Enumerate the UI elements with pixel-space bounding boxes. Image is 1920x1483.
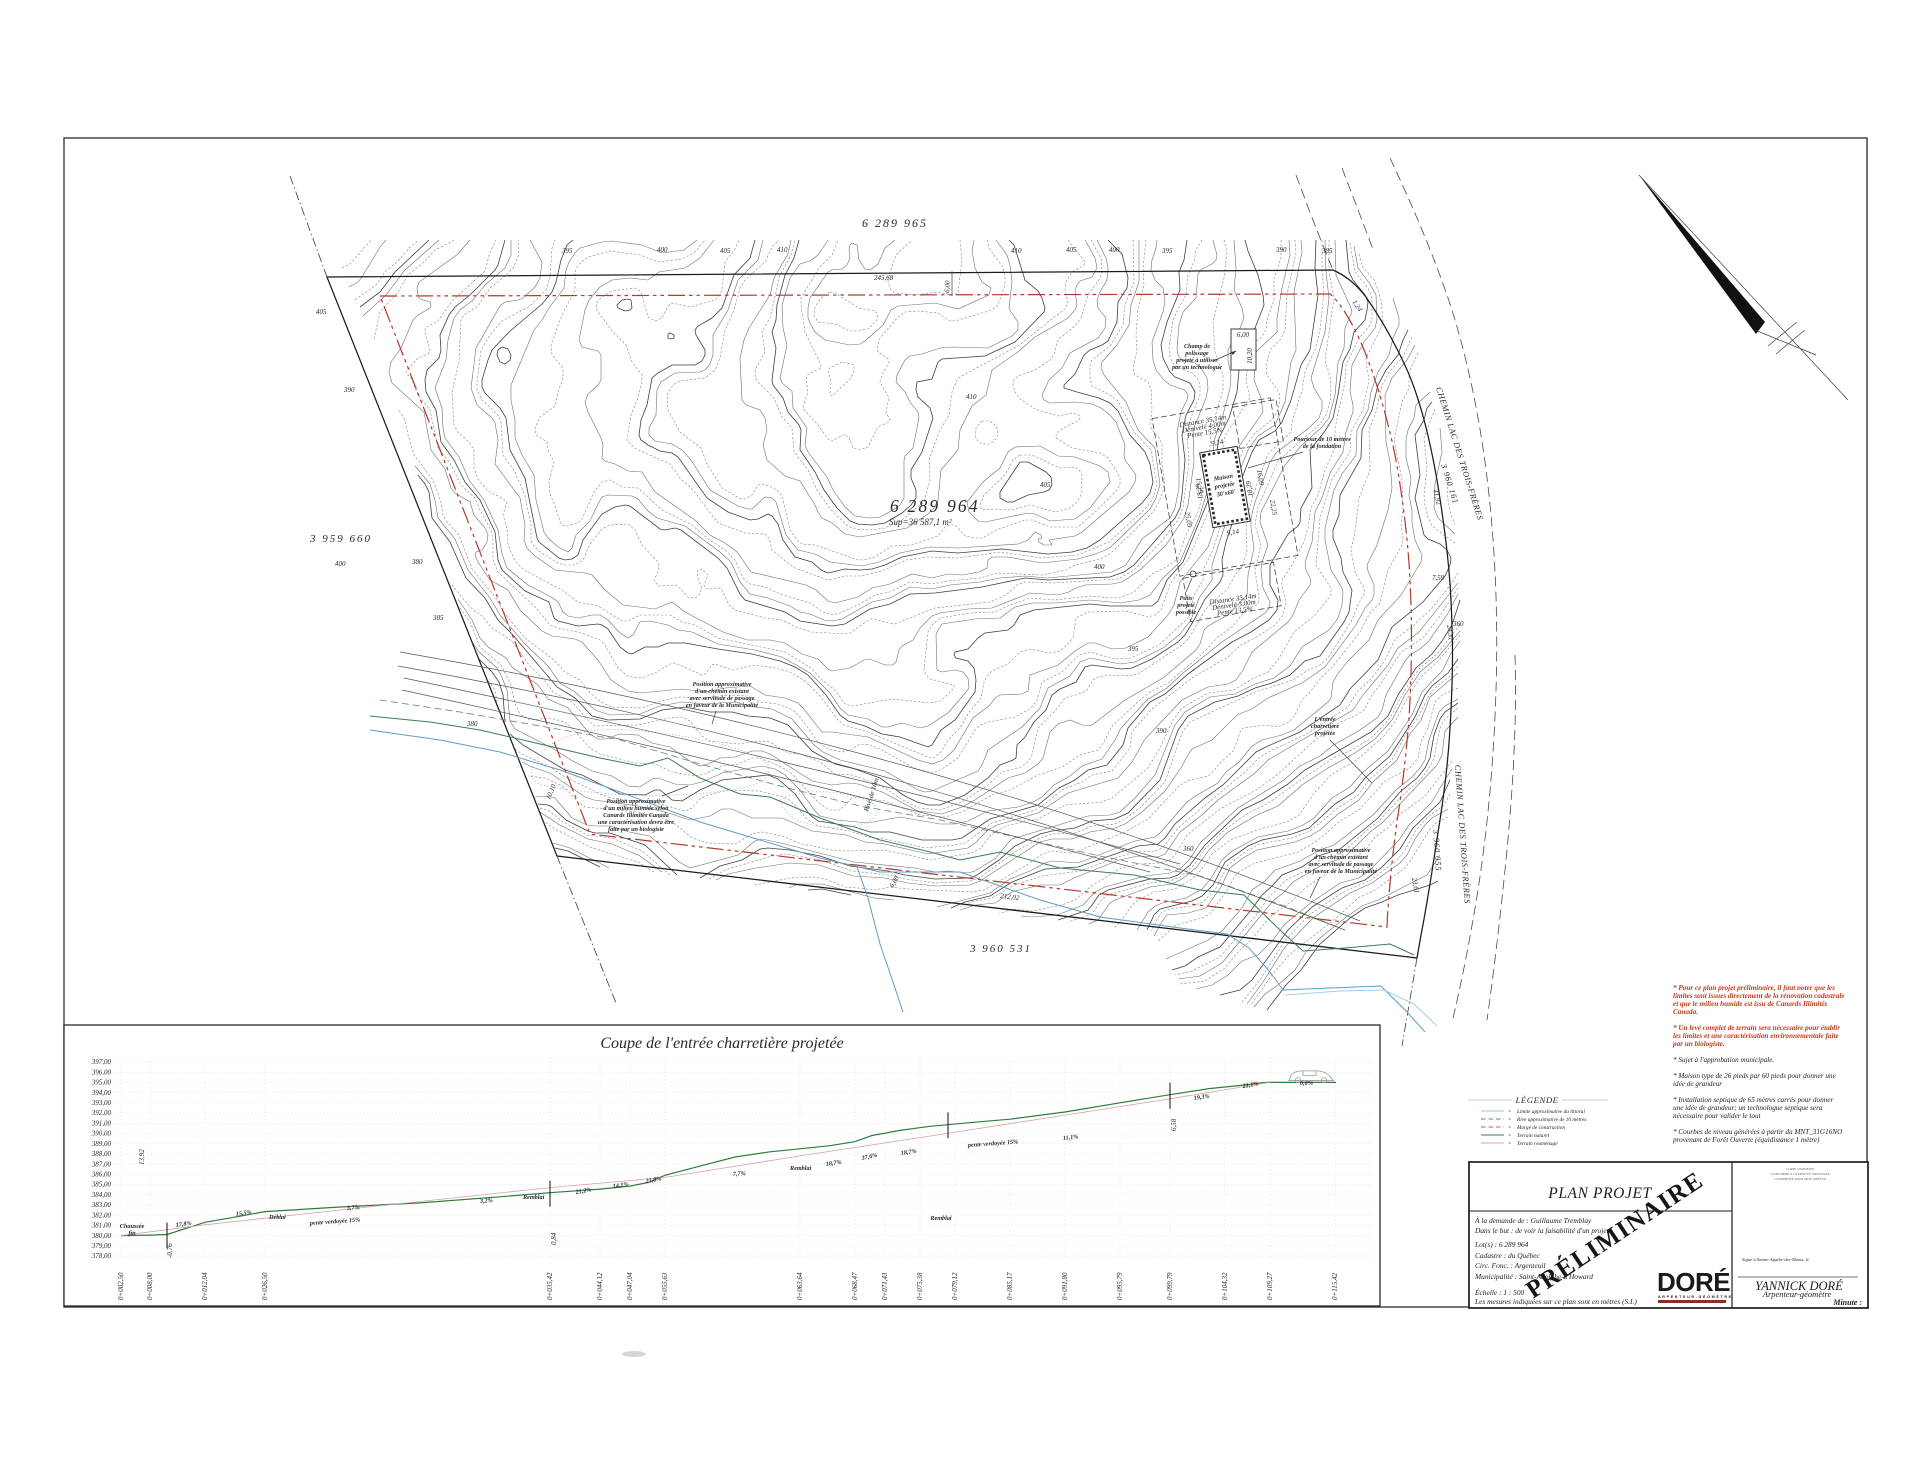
svg-text:Cadastre : du Québec: Cadastre : du Québec bbox=[1475, 1251, 1541, 1260]
svg-text:0+115,42: 0+115,42 bbox=[1331, 1273, 1339, 1300]
svg-text:0+044,12: 0+044,12 bbox=[596, 1272, 604, 1300]
svg-text:6 289 964: 6 289 964 bbox=[890, 496, 980, 516]
svg-text:405: 405 bbox=[1066, 246, 1077, 254]
svg-text:Échelle : 1 : 500: Échelle : 1 : 500 bbox=[1474, 1287, 1525, 1297]
svg-text:Position approximative: Position approximative bbox=[693, 681, 752, 688]
svg-text:378,00: 378,00 bbox=[91, 1252, 112, 1260]
svg-text:idée de grandeur: idée de grandeur bbox=[1673, 1080, 1722, 1088]
svg-text:400: 400 bbox=[335, 560, 346, 568]
svg-text:Les mesures indiquées sur ce p: Les mesures indiquées sur ce plan sont e… bbox=[1474, 1297, 1637, 1306]
svg-text:380,00: 380,00 bbox=[91, 1232, 112, 1240]
svg-text:Circ. Fonc. : Argenteuil: Circ. Fonc. : Argenteuil bbox=[1475, 1261, 1546, 1270]
svg-text:LÉGENDE: LÉGENDE bbox=[1514, 1095, 1558, 1105]
svg-text:380: 380 bbox=[466, 720, 478, 728]
svg-text:Sup=36 587,1 m²: Sup=36 587,1 m² bbox=[889, 517, 952, 527]
svg-text:Canards Illimités Canada: Canards Illimités Canada bbox=[603, 812, 669, 819]
svg-text:0+095,79: 0+095,79 bbox=[1116, 1272, 1124, 1300]
svg-text:387,00: 387,00 bbox=[91, 1160, 112, 1168]
svg-text:245,68: 245,68 bbox=[874, 274, 894, 282]
svg-text:391,00: 391,00 bbox=[91, 1120, 112, 1128]
svg-text:d'un milieu humide selon: d'un milieu humide selon bbox=[603, 805, 669, 812]
svg-text:0+079,12: 0+079,12 bbox=[951, 1272, 959, 1300]
svg-text:0+104,32: 0+104,32 bbox=[1221, 1272, 1229, 1300]
svg-text:* Un levé complet de terrain s: * Un levé complet de terrain sera nécess… bbox=[1673, 1024, 1840, 1032]
svg-text:395: 395 bbox=[1161, 247, 1173, 255]
svg-text:400: 400 bbox=[657, 246, 668, 254]
svg-text:provenant de Forêt Ouverte (éq: provenant de Forêt Ouverte (équidistance… bbox=[1672, 1136, 1820, 1144]
svg-text:Champ de: Champ de bbox=[1184, 343, 1210, 350]
svg-text:faite par un biologiste: faite par un biologiste bbox=[608, 826, 664, 833]
svg-text:Position approximative: Position approximative bbox=[607, 798, 666, 805]
svg-text:382,00: 382,00 bbox=[91, 1211, 112, 1219]
svg-text:=: = bbox=[1508, 1141, 1512, 1147]
svg-text:et que le milieu humide est is: et que le milieu humide est issu de Cana… bbox=[1673, 1000, 1828, 1008]
svg-text:386,00: 386,00 bbox=[91, 1171, 112, 1179]
svg-text:385,00: 385,00 bbox=[91, 1181, 112, 1189]
svg-text:À la demande de : Guillaume Tr: À la demande de : Guillaume Tremblay bbox=[1474, 1215, 1592, 1225]
svg-text:410: 410 bbox=[966, 393, 977, 401]
svg-text:6,00: 6,00 bbox=[943, 280, 952, 293]
svg-text:Canada.: Canada. bbox=[1673, 1008, 1698, 1016]
svg-text:en faveur de la Municipalité: en faveur de la Municipalité bbox=[1305, 868, 1377, 875]
svg-text:0+068,47: 0+068,47 bbox=[851, 1272, 859, 1300]
svg-text:410: 410 bbox=[1011, 247, 1022, 255]
svg-text:395,00: 395,00 bbox=[91, 1079, 112, 1087]
svg-text:Coupe de l'entrée charretière: Coupe de l'entrée charretière projetée bbox=[600, 1035, 843, 1052]
svg-text:394,00: 394,00 bbox=[91, 1089, 112, 1097]
svg-text:390: 390 bbox=[1155, 727, 1167, 735]
svg-text:Terrain réaménagé: Terrain réaménagé bbox=[1517, 1141, 1558, 1147]
svg-text:avec servitude de passage: avec servitude de passage bbox=[1309, 861, 1374, 868]
svg-text:en faveur de la Municipalité: en faveur de la Municipalité bbox=[686, 702, 758, 709]
svg-text:par un biologiste.: par un biologiste. bbox=[1672, 1040, 1725, 1048]
svg-text:0+099,79: 0+099,79 bbox=[1166, 1272, 1174, 1300]
svg-text:* Installation septique de 65: * Installation septique de 65 mètres car… bbox=[1673, 1096, 1833, 1104]
svg-text:Puits: Puits bbox=[1179, 595, 1193, 602]
svg-text:10,20: 10,20 bbox=[1246, 348, 1254, 364]
svg-text:Arpenteur-géomètre: Arpenteur-géomètre bbox=[1762, 1289, 1832, 1299]
svg-text:* Courbes de niveau générées à: * Courbes de niveau générées à partir du… bbox=[1673, 1128, 1843, 1136]
svg-text:396,00: 396,00 bbox=[91, 1068, 112, 1076]
svg-text:Lot(s) : 6 289 964: Lot(s) : 6 289 964 bbox=[1474, 1240, 1529, 1249]
svg-text:384,00: 384,00 bbox=[91, 1191, 112, 1199]
svg-text:projetée: projetée bbox=[1314, 730, 1336, 737]
svg-text:Remblai: Remblai bbox=[522, 1194, 545, 1201]
svg-text:* Pour ce plan projet prélimin: * Pour ce plan projet préliminaire, il f… bbox=[1673, 984, 1835, 992]
svg-text:de la fondation: de la fondation bbox=[1303, 443, 1342, 450]
svg-text:Limite approximative du littor: Limite approximative du littoral bbox=[1516, 1109, 1585, 1115]
svg-text:les limites et une caractérisa: les limites et une caractérisation envir… bbox=[1673, 1032, 1840, 1040]
svg-text:limites sont issues directemen: limites sont issues directement de la ré… bbox=[1673, 992, 1845, 1000]
svg-text:0+047,04: 0+047,04 bbox=[626, 1272, 634, 1300]
svg-text:381,00: 381,00 bbox=[91, 1222, 112, 1230]
svg-text:400: 400 bbox=[1094, 563, 1105, 571]
svg-text:* Sujet à l'approbation munici: * Sujet à l'approbation municipale. bbox=[1673, 1056, 1774, 1064]
svg-text:0+002,50: 0+002,50 bbox=[117, 1272, 125, 1300]
svg-text:0+012,04: 0+012,04 bbox=[201, 1272, 209, 1300]
svg-text:0+063,64: 0+063,64 bbox=[796, 1272, 804, 1300]
svg-text:3,7%: 3,7% bbox=[346, 1204, 360, 1212]
svg-text:projeté: projeté bbox=[1176, 602, 1195, 609]
svg-text:7,59: 7,59 bbox=[1432, 574, 1445, 582]
svg-text:Chaussée: Chaussée bbox=[120, 1223, 145, 1230]
svg-text:nécessaire pour valider le tou: nécessaire pour valider le tout bbox=[1673, 1112, 1762, 1120]
svg-text:379,00: 379,00 bbox=[91, 1242, 112, 1250]
svg-text:Pourtour de 10 mètres: Pourtour de 10 mètres bbox=[1294, 436, 1351, 443]
svg-text:405: 405 bbox=[1040, 481, 1051, 489]
svg-text:possible: possible bbox=[1175, 609, 1197, 616]
svg-text:400: 400 bbox=[1109, 246, 1120, 254]
svg-text:0+035,42: 0+035,42 bbox=[546, 1272, 554, 1300]
svg-text:0,84: 0,84 bbox=[550, 1232, 558, 1245]
svg-text:397,00: 397,00 bbox=[91, 1058, 112, 1066]
svg-text:389,00: 389,00 bbox=[91, 1140, 112, 1148]
svg-text:d'un chemin existant: d'un chemin existant bbox=[1314, 854, 1368, 861]
svg-text:380: 380 bbox=[411, 558, 423, 566]
svg-text:fin: fin bbox=[128, 1230, 136, 1237]
svg-text:Remblai: Remblai bbox=[929, 1215, 952, 1222]
svg-text:* Maison type de 26 pieds par: * Maison type de 26 pieds par 60 pieds p… bbox=[1673, 1072, 1837, 1080]
svg-text:0+055,63: 0+055,63 bbox=[661, 1272, 669, 1300]
svg-text:projeté à utiliser: projeté à utiliser bbox=[1175, 357, 1218, 364]
svg-text:d'un chemin existant: d'un chemin existant bbox=[695, 688, 749, 695]
svg-text:Terrain naturel: Terrain naturel bbox=[1517, 1133, 1550, 1139]
svg-text:6 289 965: 6 289 965 bbox=[862, 216, 928, 230]
svg-text:388,00: 388,00 bbox=[91, 1150, 112, 1158]
svg-text:-0,76: -0,76 bbox=[166, 1243, 174, 1258]
svg-text:avec servitude de passage: avec servitude de passage bbox=[690, 695, 755, 702]
svg-text:6,58: 6,58 bbox=[1170, 1118, 1178, 1131]
svg-text:3 959 660: 3 959 660 bbox=[309, 533, 372, 545]
svg-text:Remblai: Remblai bbox=[789, 1165, 812, 1172]
svg-text:0+109,27: 0+109,27 bbox=[1266, 1272, 1274, 1300]
svg-text:395: 395 bbox=[561, 247, 573, 255]
svg-text:0+026,50: 0+026,50 bbox=[261, 1272, 269, 1300]
svg-text:3 960 531: 3 960 531 bbox=[969, 943, 1032, 955]
svg-text:0+008,00: 0+008,00 bbox=[146, 1272, 154, 1300]
svg-text:7,7%: 7,7% bbox=[733, 1170, 746, 1178]
svg-text:405: 405 bbox=[316, 308, 327, 316]
svg-text:360: 360 bbox=[1182, 845, 1194, 853]
svg-text:0+071,43: 0+071,43 bbox=[881, 1272, 889, 1300]
svg-text:une caractérisation devra être: une caractérisation devra être bbox=[598, 819, 674, 826]
svg-text:DORÉ: DORÉ bbox=[1657, 1267, 1730, 1297]
svg-text:Dans le but : de voir la faisa: Dans le but : de voir la faisabilité d'u… bbox=[1474, 1226, 1610, 1235]
svg-text:390: 390 bbox=[1275, 246, 1287, 254]
svg-text:=: = bbox=[1508, 1109, 1512, 1115]
svg-text:polissage: polissage bbox=[1184, 350, 1209, 357]
svg-text:3,2%: 3,2% bbox=[479, 1197, 493, 1205]
svg-text:COPIE CERTIFIÉE: COPIE CERTIFIÉE bbox=[1786, 1166, 1815, 1171]
svg-text:=: = bbox=[1508, 1133, 1512, 1139]
svg-text:0+075,38: 0+075,38 bbox=[916, 1272, 924, 1300]
svg-text:6,00: 6,00 bbox=[1237, 331, 1250, 339]
svg-text:0+091,80: 0+091,80 bbox=[1061, 1272, 1069, 1300]
svg-text:CONSERVÉE DANS MON GREFFE: CONSERVÉE DANS MON GREFFE bbox=[1774, 1176, 1827, 1181]
svg-text:charretière: charretière bbox=[1311, 723, 1339, 730]
svg-text:Minute :: Minute : bbox=[1832, 1298, 1862, 1307]
svg-text:Marge de construction: Marge de construction bbox=[1516, 1125, 1565, 1131]
svg-text:=: = bbox=[1508, 1117, 1512, 1123]
svg-text:ARPENTEUR-GÉOMÈTRE: ARPENTEUR-GÉOMÈTRE bbox=[1658, 1294, 1733, 1299]
svg-text:405: 405 bbox=[720, 247, 731, 255]
svg-text:par un technologue: par un technologue bbox=[1171, 364, 1222, 371]
svg-text:CONFORME À LA MINUTE ORIGINALE: CONFORME À LA MINUTE ORIGINALE bbox=[1770, 1171, 1831, 1176]
svg-text:395: 395 bbox=[1127, 645, 1139, 653]
svg-text:Déblai: Déblai bbox=[268, 1214, 286, 1221]
svg-text:392,00: 392,00 bbox=[91, 1109, 112, 1117]
svg-text:360: 360 bbox=[1452, 620, 1464, 628]
svg-text:Position approximative: Position approximative bbox=[1312, 847, 1371, 854]
svg-text:383,00: 383,00 bbox=[91, 1201, 112, 1209]
svg-text:PLAN PROJET: PLAN PROJET bbox=[1547, 1185, 1652, 1202]
svg-text:410: 410 bbox=[777, 246, 788, 254]
svg-text:Rive approximative de 10 mètre: Rive approximative de 10 mètres bbox=[1516, 1117, 1586, 1123]
svg-text:0,0%: 0,0% bbox=[1300, 1080, 1313, 1087]
svg-text:390: 390 bbox=[343, 386, 355, 394]
svg-text:=: = bbox=[1508, 1125, 1512, 1131]
svg-text:390,00: 390,00 bbox=[91, 1130, 112, 1138]
svg-text:393,00: 393,00 bbox=[91, 1099, 112, 1107]
svg-text:385: 385 bbox=[432, 614, 444, 622]
svg-text:une idée de grandeur; un techn: une idée de grandeur; un technologue sep… bbox=[1673, 1104, 1823, 1112]
svg-text:385: 385 bbox=[1321, 247, 1333, 255]
svg-text:13,92: 13,92 bbox=[138, 1149, 146, 1165]
svg-text:L'entrée: L'entrée bbox=[1313, 716, 1336, 723]
svg-text:0+085,17: 0+085,17 bbox=[1006, 1272, 1014, 1300]
